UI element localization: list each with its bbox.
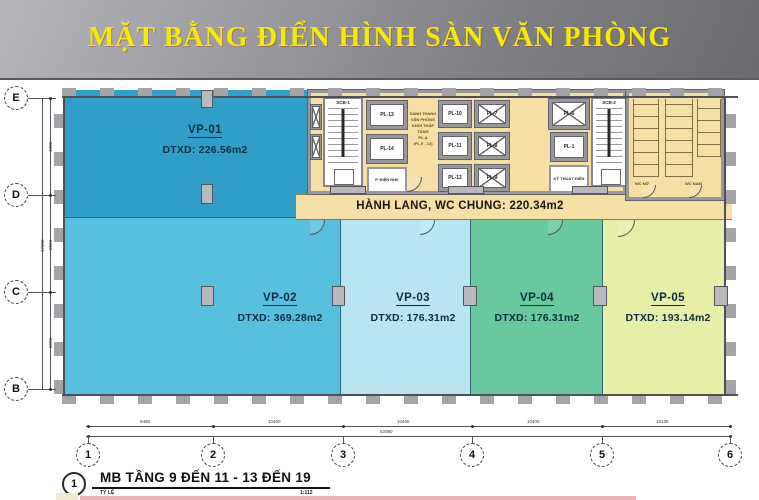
- zone-vp05-label: VP-05 DTXD: 193.14m2: [588, 288, 748, 324]
- grid-col-label: 1: [85, 449, 91, 461]
- door-arc-icon: [643, 185, 656, 198]
- zone-area: DTXD: 226.56m2: [125, 144, 285, 156]
- wc-stalls: [665, 99, 693, 177]
- grid-row-c: C: [4, 280, 28, 304]
- door-arc-icon: [407, 177, 422, 192]
- grid-row-label: C: [12, 286, 20, 298]
- grid-col-1: 1: [76, 443, 100, 467]
- staircase-scb1: SCB-1: [323, 97, 363, 187]
- dim-tick: [342, 425, 345, 428]
- lobby-line: KHỐI THẤP TẦNG: [409, 123, 437, 135]
- titleblock-number-label: 1: [71, 478, 77, 490]
- elevator-pl9-label: PL-9: [487, 175, 498, 181]
- grid-col-2: 2: [201, 443, 225, 467]
- dim-line-bottom: [86, 436, 732, 437]
- slide-title: MẶT BẰNG ĐIỂN HÌNH SÀN VĂN PHÒNG: [0, 22, 759, 54]
- zone-name: VP-02: [263, 292, 297, 306]
- stair-rail-icon: [342, 109, 345, 157]
- elevator-pl1-label: PL-1: [564, 144, 575, 150]
- elevator-pl14-label: PL-14: [380, 146, 394, 152]
- lobby-line: (PL.9 - 13): [409, 141, 437, 147]
- dim-tick: [49, 97, 52, 100]
- services-core: SCB-1 PL-13 PL-14 P. ĐIỆN NHẸ SẢNH THANG…: [308, 90, 626, 194]
- dim-line-bottom: [86, 426, 732, 427]
- door-arc-icon: [689, 185, 702, 198]
- dim-tick: [212, 425, 215, 428]
- elevator-pl8: PL-8: [475, 133, 509, 159]
- wall-bottom: [62, 394, 738, 404]
- grid-row-e: E: [4, 86, 28, 110]
- titleblock-underline: [92, 487, 330, 489]
- wc-stalls: [697, 99, 721, 157]
- elevator-pl13-label: PL-13: [380, 112, 394, 118]
- dim-tick: [471, 425, 474, 428]
- column: [201, 90, 213, 108]
- elevator-pl14: PL-14: [367, 135, 407, 163]
- slide-header: MẶT BẰNG ĐIỂN HÌNH SÀN VĂN PHÒNG: [0, 0, 759, 80]
- grid-col-label: 3: [340, 449, 346, 461]
- wall-top: [62, 88, 738, 98]
- column: [201, 184, 213, 204]
- zone-name: VP-01: [188, 124, 222, 138]
- stair-room-icon: [334, 169, 354, 185]
- grid-col-6: 6: [718, 443, 742, 467]
- dim-value: 6550: [48, 338, 53, 348]
- grid-row-label: E: [12, 92, 19, 104]
- wall-stub: [572, 186, 608, 194]
- wall-stub: [330, 186, 366, 194]
- stair-rail-icon: [608, 109, 611, 157]
- elevator-pl8-label: PL-8: [487, 143, 498, 149]
- dim-tick: [729, 425, 732, 428]
- zone-name: VP-04: [520, 292, 554, 306]
- grid-col-label: 6: [727, 449, 733, 461]
- elevator-pl7-label: PL-7: [487, 111, 498, 117]
- zone-name: VP-03: [396, 292, 430, 306]
- elevator-pl12-label: PL-12: [448, 175, 462, 181]
- electrical-room-label: P. ĐIỆN NHẸ: [375, 178, 399, 183]
- wall-left: [54, 96, 65, 394]
- dim-tick: [49, 388, 52, 391]
- dim-value: 10400: [397, 419, 410, 424]
- dim-total: 17300: [40, 239, 45, 252]
- dim-value: 10400: [527, 419, 540, 424]
- dim-tick: [87, 425, 90, 428]
- lobby-text: SẢNH THANG VĂN PHÒNG KHỐI THẤP TẦNG PL-A…: [409, 111, 437, 147]
- shaft-icon: [311, 135, 321, 159]
- staircase-scb2: SCB-2: [591, 97, 627, 187]
- zone-vp01-label: VP-01 DTXD: 226.56m2: [125, 120, 285, 156]
- dim-value: 10400: [268, 419, 281, 424]
- elevator-pl11: PL-11: [439, 133, 471, 159]
- wc-block: WC NỮ WC NAM: [626, 90, 724, 200]
- elevator-pl1: PL-1: [551, 133, 587, 161]
- dim-tick: [49, 194, 52, 197]
- dim-value: 10136: [656, 419, 669, 424]
- grid-col-4: 4: [460, 443, 484, 467]
- zone-name: VP-05: [651, 292, 685, 306]
- grid-row-label: D: [12, 189, 20, 201]
- elevator-pl10-label: PL-10: [448, 111, 462, 117]
- grid-col-label: 2: [210, 449, 216, 461]
- dim-tick: [49, 291, 52, 294]
- elevator-pl11-label: PL-11: [448, 143, 461, 149]
- wall-stub: [448, 186, 484, 194]
- edge-chip: [56, 493, 78, 500]
- dim-value: 4200: [48, 142, 53, 152]
- corridor-label: HÀNH LANG, WC CHUNG: 220.34m2: [310, 200, 610, 212]
- elevator-pl6-label: PL-6: [564, 111, 575, 117]
- technical-room-label: KỸ THUẬT ĐIỆN: [554, 177, 585, 182]
- electrical-room: P. ĐIỆN NHẸ: [367, 167, 407, 193]
- elevator-pl13: PL-13: [367, 101, 407, 129]
- elevator-pl10: PL-10: [439, 101, 471, 127]
- floor-plan-slide: MẶT BẰNG ĐIỂN HÌNH SÀN VĂN PHÒNG HÀNH LA…: [0, 0, 759, 500]
- elevator-pl6: PL-6: [549, 99, 589, 129]
- dim-tick: [601, 425, 604, 428]
- grid-row-d: D: [4, 183, 28, 207]
- grid-col-5: 5: [590, 443, 614, 467]
- grid-col-label: 4: [469, 449, 475, 461]
- staircase-scb1-label: SCB-1: [325, 100, 361, 105]
- wc-stalls: [633, 99, 659, 177]
- titleblock-title: MB TẦNG 9 ĐẾN 11 - 13 ĐẾN 19: [100, 470, 311, 485]
- zone-area: DTXD: 193.14m2: [588, 312, 748, 324]
- dim-value: 6550: [48, 240, 53, 250]
- shaft-icon: [311, 105, 321, 129]
- dim-total: 52080: [380, 429, 393, 434]
- grid-row-b: B: [4, 377, 28, 401]
- dim-value: 9480: [140, 419, 150, 424]
- edge-strip: [80, 496, 636, 500]
- elevator-pl7: PL-7: [475, 101, 509, 127]
- staircase-scb2-label: SCB-2: [593, 100, 625, 105]
- grid-col-3: 3: [331, 443, 355, 467]
- stair-room-icon: [601, 169, 621, 185]
- grid-row-label: B: [12, 383, 20, 395]
- grid-col-label: 5: [599, 449, 605, 461]
- wall-right: [724, 96, 736, 394]
